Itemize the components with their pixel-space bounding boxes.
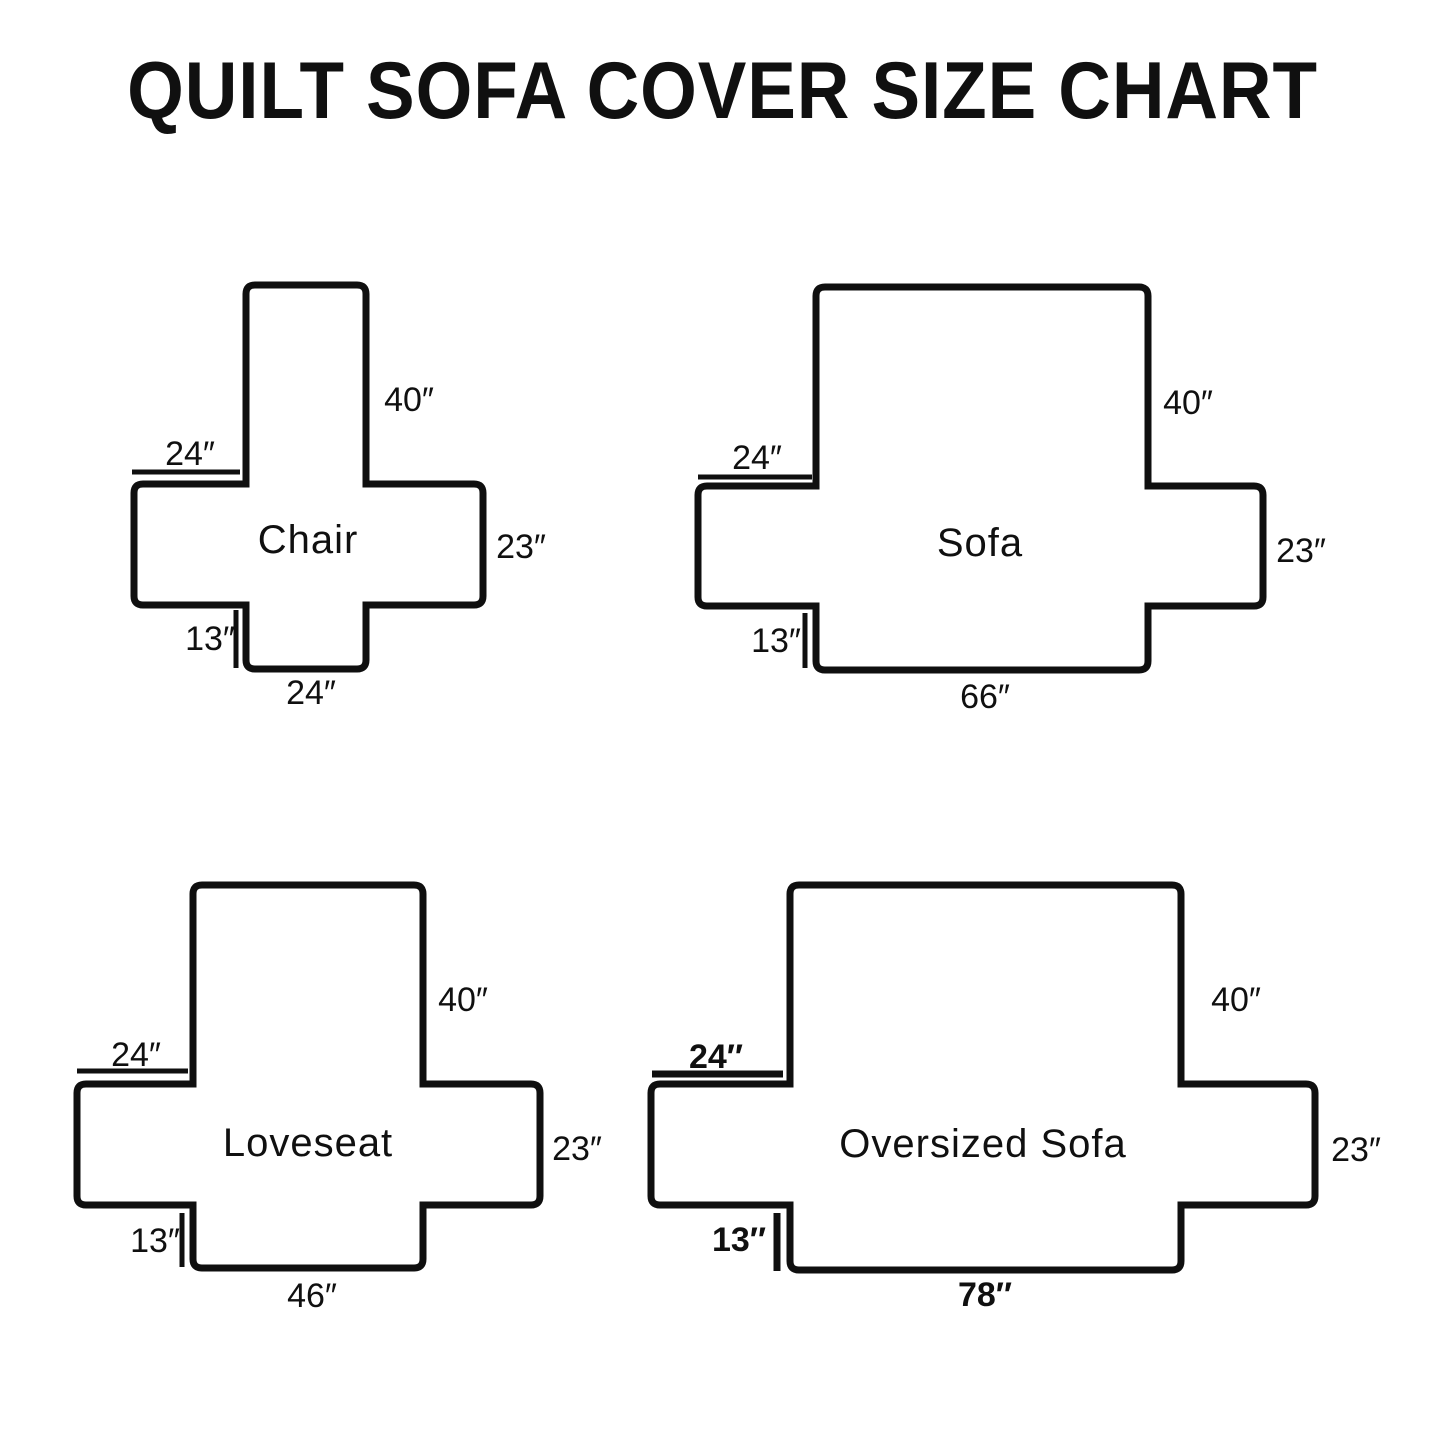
oversized-sofa-bottom-width-label: 78″: [958, 1278, 1012, 1312]
oversized-sofa-side-height-label: 23″: [1331, 1133, 1381, 1167]
oversized-sofa-diagram: Oversized Sofa 40″ 24″ 23″ 13″ 78″: [0, 0, 1445, 1435]
oversized-sofa-arm-width-label: 24″: [689, 1040, 743, 1074]
size-chart-page: QUILT SOFA COVER SIZE CHART Chair 40″ 24…: [0, 0, 1445, 1435]
oversized-sofa-back-height-label: 40″: [1211, 983, 1261, 1017]
oversized-sofa-name-label: Oversized Sofa: [839, 1124, 1126, 1164]
oversized-sofa-skirt-height-label: 13″: [712, 1223, 766, 1257]
